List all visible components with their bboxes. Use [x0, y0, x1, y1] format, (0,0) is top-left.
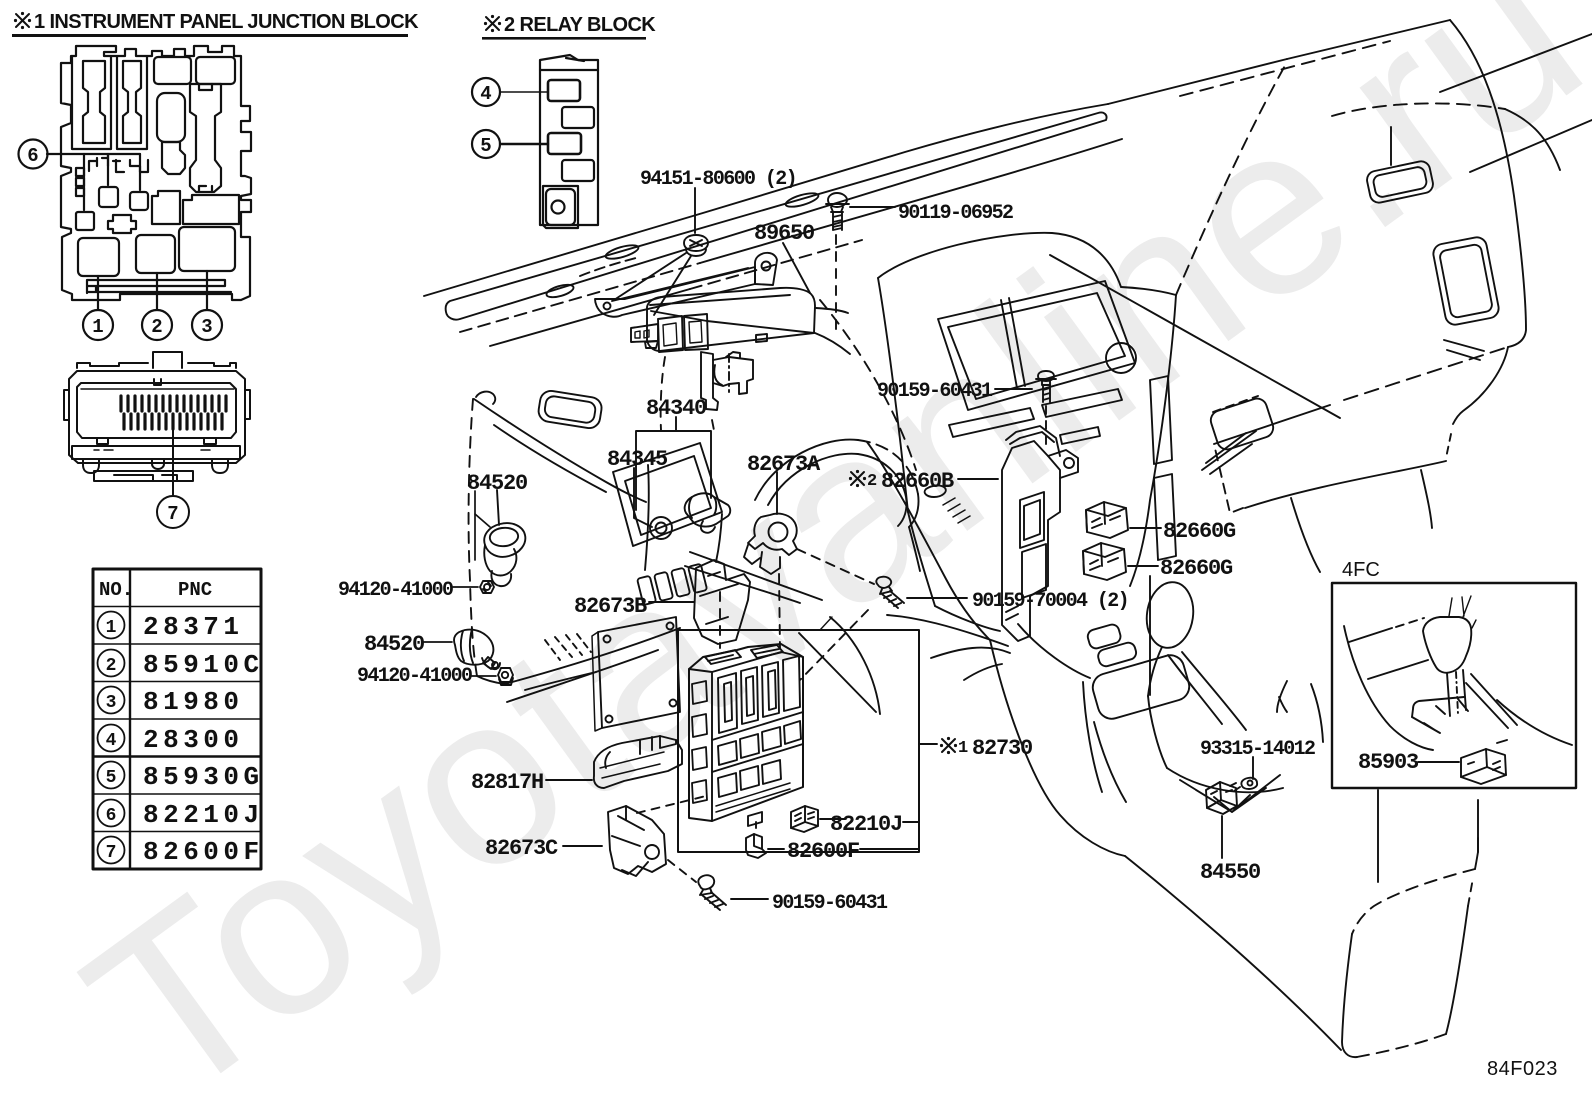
svg-text:81980: 81980	[143, 687, 244, 717]
svg-text:82730: 82730	[972, 736, 1032, 761]
svg-text:82660G: 82660G	[1163, 519, 1236, 544]
svg-text:1: 1	[958, 739, 968, 758]
svg-text:6: 6	[106, 806, 117, 826]
svg-text:28300: 28300	[143, 725, 244, 755]
svg-text:5: 5	[480, 135, 491, 157]
svg-text:93315-14012: 93315-14012	[1200, 738, 1315, 761]
svg-text:84520: 84520	[467, 471, 527, 496]
svg-text:90159-70004 (2): 90159-70004 (2)	[972, 590, 1128, 613]
svg-text:84340: 84340	[646, 396, 706, 421]
svg-text:4FC: 4FC	[1342, 559, 1380, 581]
svg-text:3: 3	[106, 693, 117, 713]
svg-text:82600F: 82600F	[787, 839, 859, 864]
svg-text:94151-80600 (2): 94151-80600 (2)	[640, 168, 796, 191]
svg-text:7: 7	[106, 843, 117, 863]
svg-text:2 RELAY BLOCK: 2 RELAY BLOCK	[504, 14, 656, 36]
svg-text:89650: 89650	[754, 221, 814, 246]
svg-text:3: 3	[201, 316, 212, 338]
svg-text:82660G: 82660G	[1160, 556, 1233, 581]
svg-text:90159-60431: 90159-60431	[772, 892, 888, 915]
svg-text:4: 4	[106, 731, 117, 751]
svg-text:Toyotavanline.ru: Toyotavanline.ru	[42, 0, 1592, 1099]
svg-text:90159-60431: 90159-60431	[877, 380, 993, 403]
svg-text:2: 2	[867, 472, 877, 491]
svg-text:84345: 84345	[607, 447, 668, 472]
svg-text:7: 7	[167, 503, 178, 525]
svg-text:94120-41000: 94120-41000	[338, 579, 453, 602]
svg-text:82673B: 82673B	[574, 594, 647, 619]
svg-text:82600F: 82600F	[143, 837, 264, 867]
svg-text:6: 6	[27, 145, 38, 167]
svg-text:90119-06952: 90119-06952	[898, 202, 1013, 225]
svg-text:85910C: 85910C	[143, 650, 264, 680]
svg-text:28371: 28371	[143, 612, 244, 642]
svg-text:82673A: 82673A	[747, 452, 821, 477]
svg-text:PNC: PNC	[178, 579, 212, 601]
svg-text:82673C: 82673C	[485, 836, 558, 861]
svg-text:84F023: 84F023	[1487, 1058, 1558, 1080]
svg-text:5: 5	[106, 768, 117, 788]
svg-text:84550: 84550	[1200, 860, 1260, 885]
svg-text:NO.: NO.	[99, 579, 133, 601]
svg-text:82660B: 82660B	[881, 469, 954, 494]
svg-text:2: 2	[151, 316, 162, 338]
svg-text:1: 1	[106, 618, 117, 638]
svg-text:1: 1	[92, 316, 103, 338]
svg-text:94120-41000: 94120-41000	[357, 665, 472, 688]
svg-text:85903: 85903	[1358, 750, 1419, 775]
svg-text:1 INSTRUMENT PANEL JUNCTION BL: 1 INSTRUMENT PANEL JUNCTION BLOCK	[34, 11, 419, 33]
svg-text:82210J: 82210J	[830, 812, 902, 837]
svg-text:85930G: 85930G	[143, 762, 264, 792]
svg-text:84520: 84520	[364, 632, 424, 657]
svg-text:2: 2	[106, 656, 117, 676]
svg-text:82817H: 82817H	[471, 770, 543, 795]
svg-text:82210J: 82210J	[143, 800, 264, 830]
svg-text:4: 4	[480, 83, 491, 105]
